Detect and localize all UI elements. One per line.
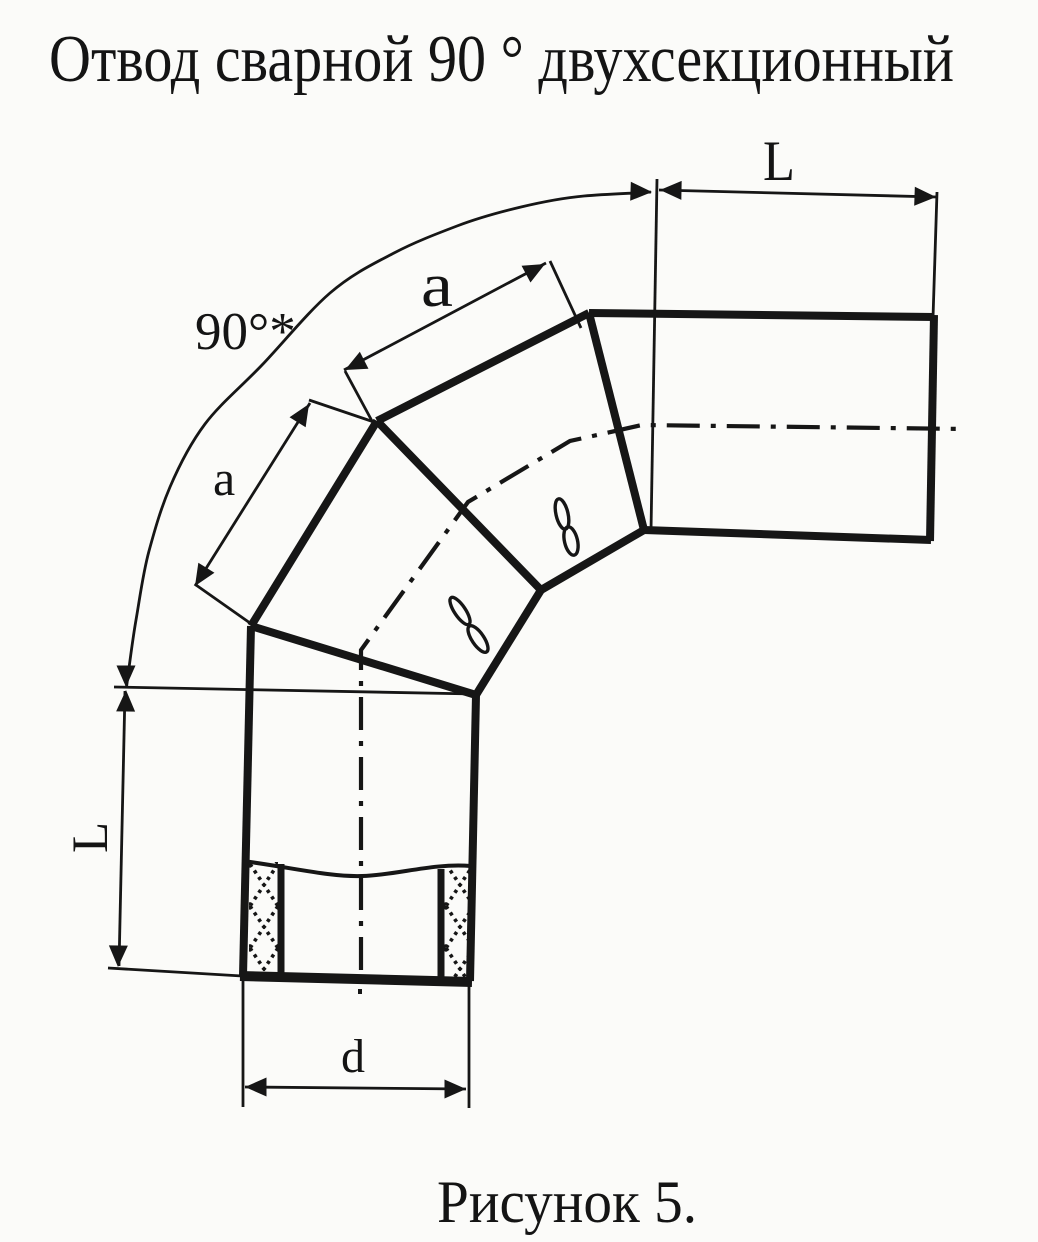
svg-text:L: L xyxy=(63,822,119,853)
svg-text:a: a xyxy=(421,252,453,320)
svg-text:a: a xyxy=(213,450,235,506)
svg-text:Отвод сварной 90 ° двухсекцион: Отвод сварной 90 ° двухсекционный xyxy=(49,22,954,96)
svg-text:Рисунок 5.: Рисунок 5. xyxy=(437,1169,697,1235)
svg-text:d: d xyxy=(341,1030,365,1083)
svg-text:90°*: 90°* xyxy=(195,303,296,361)
svg-text:L: L xyxy=(763,130,795,193)
